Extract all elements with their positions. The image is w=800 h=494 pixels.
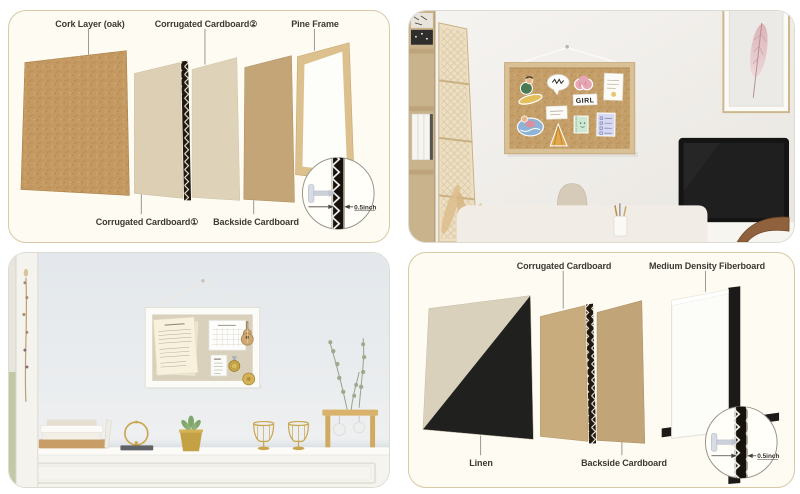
label-pine-frame: Pine Frame — [291, 19, 339, 30]
product-collage: 0.5inch Cork Layer (oak) Corrugated Card… — [0, 0, 800, 494]
linen-panel — [423, 296, 533, 440]
label-corrugated-cardboard: Corrugated Cardboard — [517, 261, 612, 272]
label-cork-layer: Cork Layer (oak) — [55, 19, 124, 30]
thickness-value: 0.5inch — [757, 453, 779, 460]
photo-cork-board-room: GIRL — [408, 10, 795, 243]
room-scene: GIRL — [409, 11, 794, 242]
linen-layers-illustration: 0.5inch — [409, 253, 794, 487]
label-mdf: Medium Density Fiberboard — [649, 261, 765, 272]
pinned-note-small — [546, 106, 567, 120]
label-corrugated1: Corrugated Cardboard① — [96, 217, 198, 228]
sticker-girl-label: GIRL — [573, 94, 597, 106]
pinned-note-top — [604, 73, 624, 100]
diagram-cork-board-layers: 0.5inch Cork Layer (oak) Corrugated Card… — [8, 10, 390, 243]
window-frame — [9, 253, 38, 487]
sheet-music-pages — [153, 317, 198, 376]
shelf-books — [412, 114, 433, 160]
mantel-scene — [9, 253, 389, 487]
thickness-detail-circle: 0.5inch — [302, 157, 376, 230]
mantel-shelf — [9, 447, 389, 487]
cork-layers-illustration: 0.5inch — [9, 11, 389, 242]
label-corrugated2: Corrugated Cardboard② — [155, 19, 257, 30]
thickness-value: 0.5inch — [354, 204, 376, 211]
corrugated-cardboard2-panel — [192, 58, 240, 201]
succulent-gold-pot — [179, 416, 203, 452]
label-backside-cardboard: Backside Cardboard — [213, 217, 299, 228]
corrugated-cardboard1-panel — [134, 63, 183, 199]
sticker-notebook — [574, 116, 588, 133]
hanging-nail — [201, 279, 205, 283]
framed-art — [723, 11, 789, 112]
photo-linen-board-mantel — [8, 252, 390, 488]
sticky-note-checklist — [597, 113, 615, 136]
wall-shelf — [409, 11, 435, 242]
sofa — [457, 205, 708, 242]
label-linen: Linen — [469, 458, 493, 469]
pinned-checklist-note — [211, 355, 227, 376]
girl-sticker-text: GIRL — [576, 97, 595, 105]
backside-cardboard-panel — [597, 301, 645, 444]
diagram-linen-board-layers: 0.5inch Corrugated Cardboard Medium Dens… — [408, 252, 795, 488]
cork-panel — [21, 51, 129, 196]
corrugated-cardboard-panel — [540, 306, 588, 442]
backside-cardboard-panel — [244, 56, 295, 203]
label-backside-cardboard: Backside Cardboard — [581, 458, 667, 469]
hanging-nail — [565, 45, 569, 49]
calendar — [209, 320, 246, 350]
